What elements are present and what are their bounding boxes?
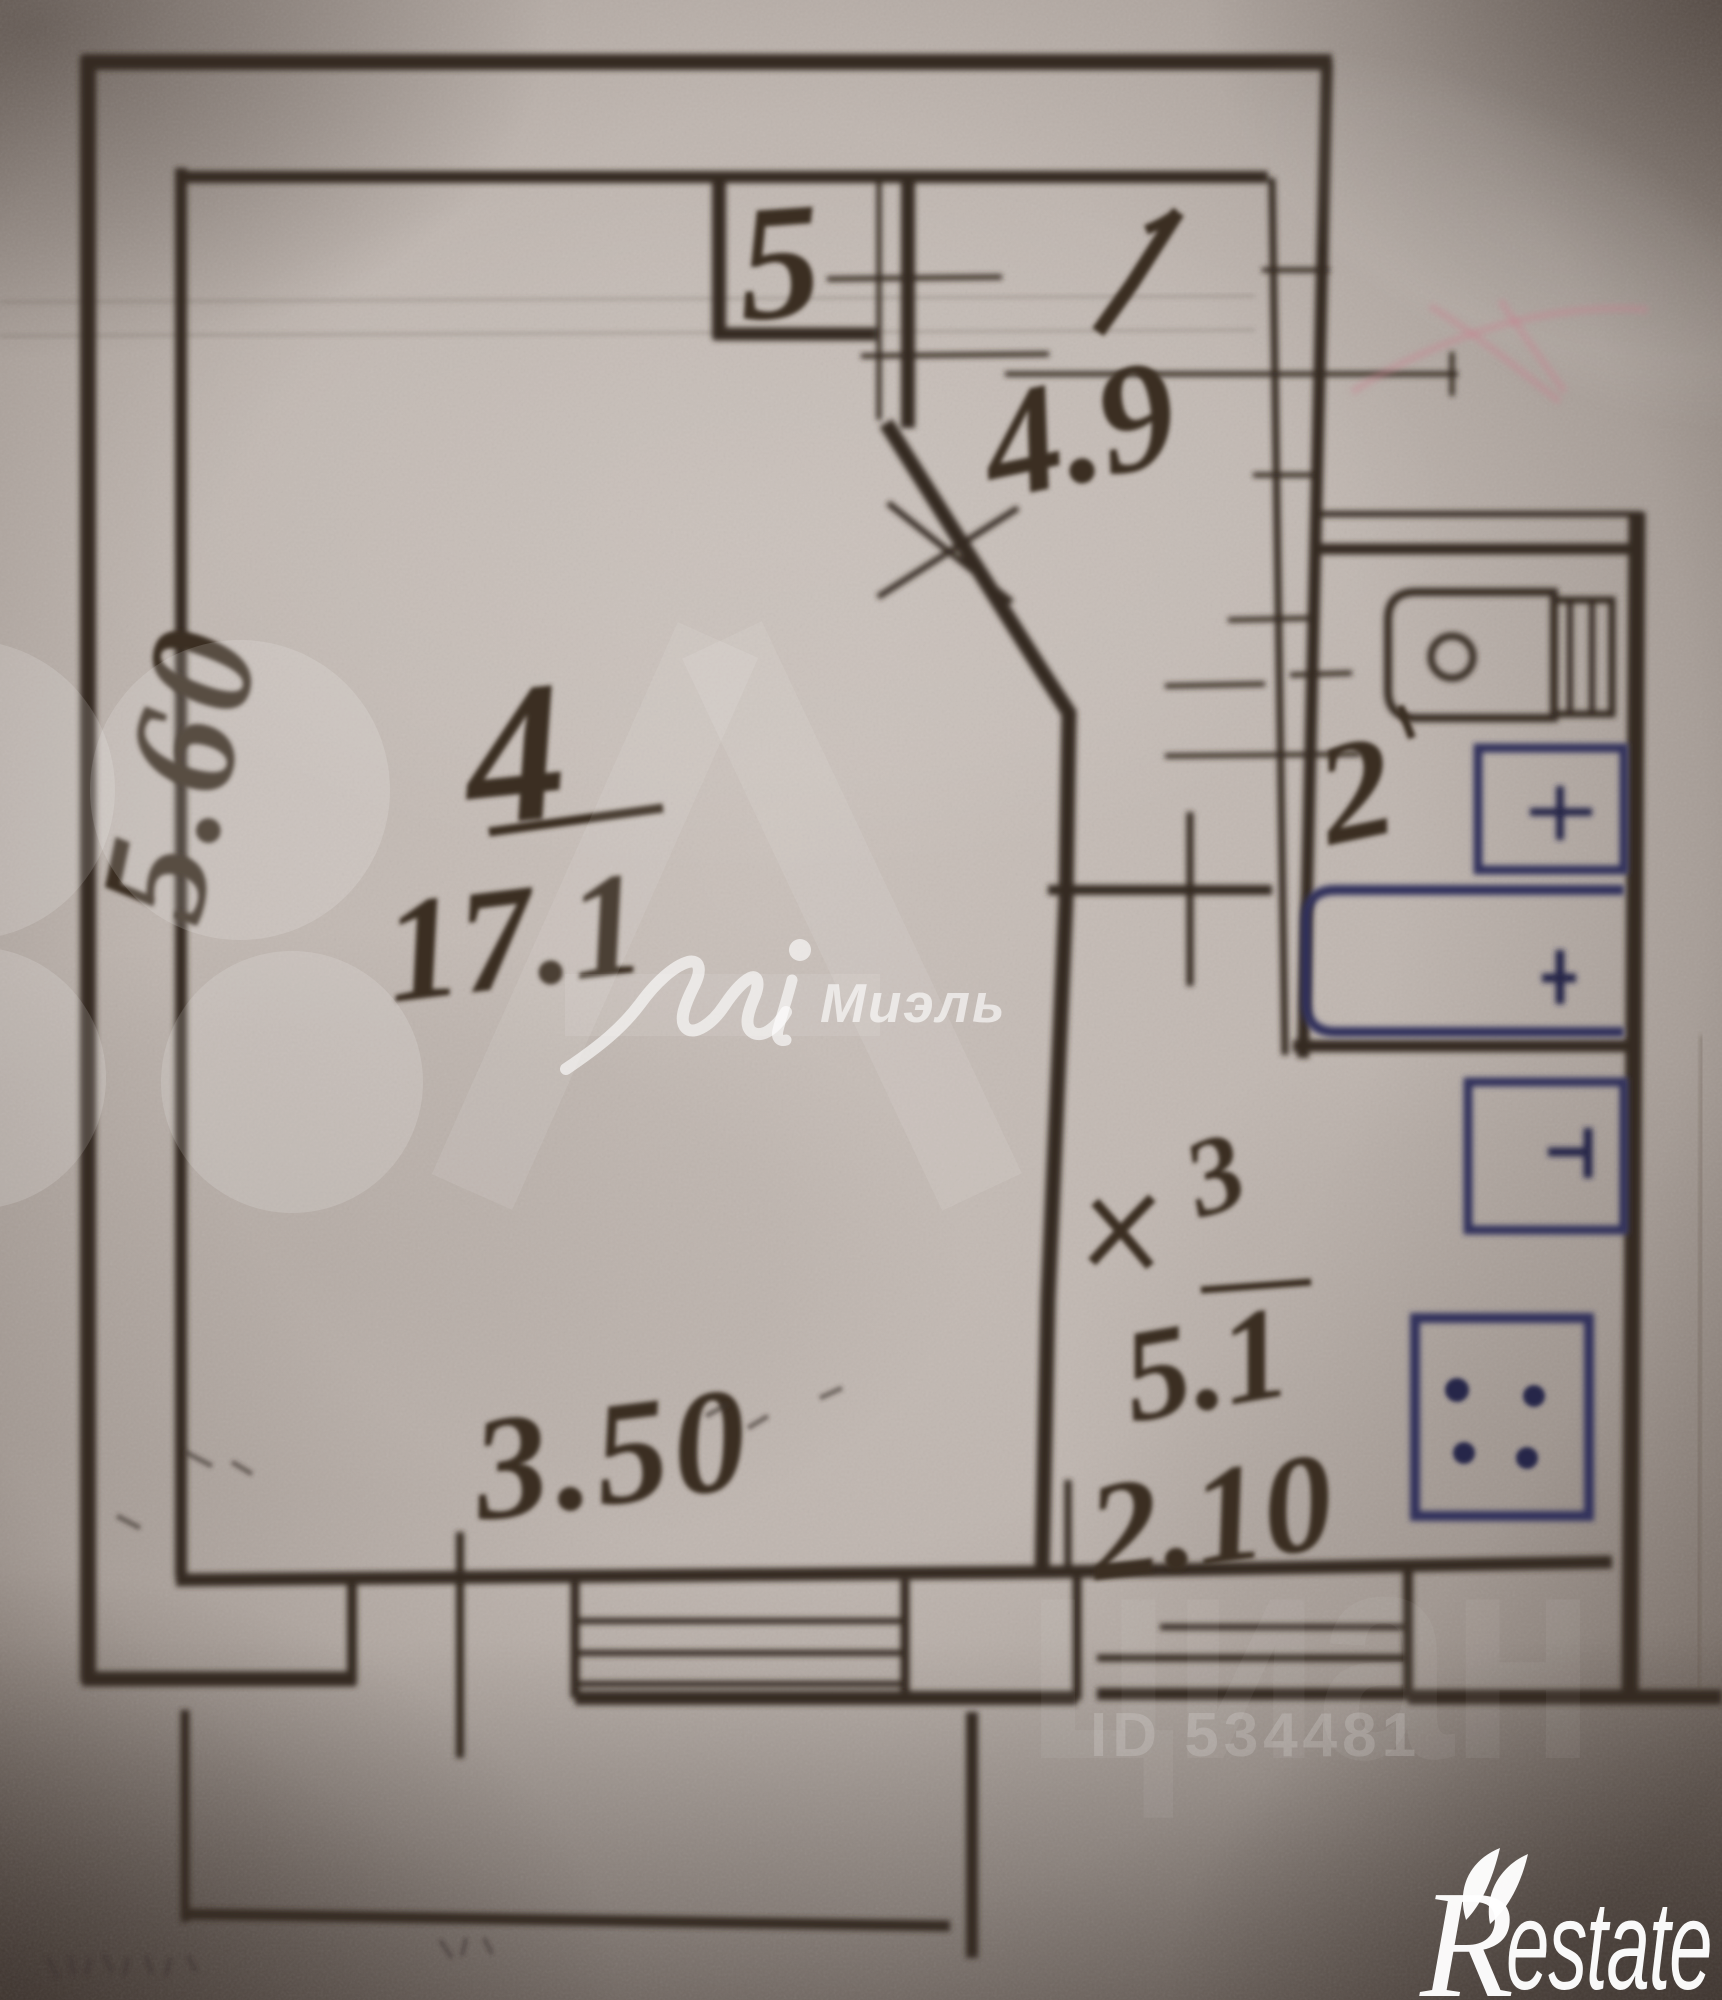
svg-text:5: 5	[732, 168, 827, 356]
svg-text:estate: estate	[1506, 1876, 1711, 2000]
svg-text:ID 534481: ID 534481	[1090, 1701, 1421, 1770]
svg-text:циан: циан	[1024, 1488, 1592, 1823]
svg-text:3.50: 3.50	[462, 1356, 761, 1553]
svg-text:Миэль: Миэль	[820, 972, 1007, 1034]
svg-text:5.1: 5.1	[1112, 1277, 1300, 1450]
svg-text:R: R	[1419, 1860, 1514, 2000]
